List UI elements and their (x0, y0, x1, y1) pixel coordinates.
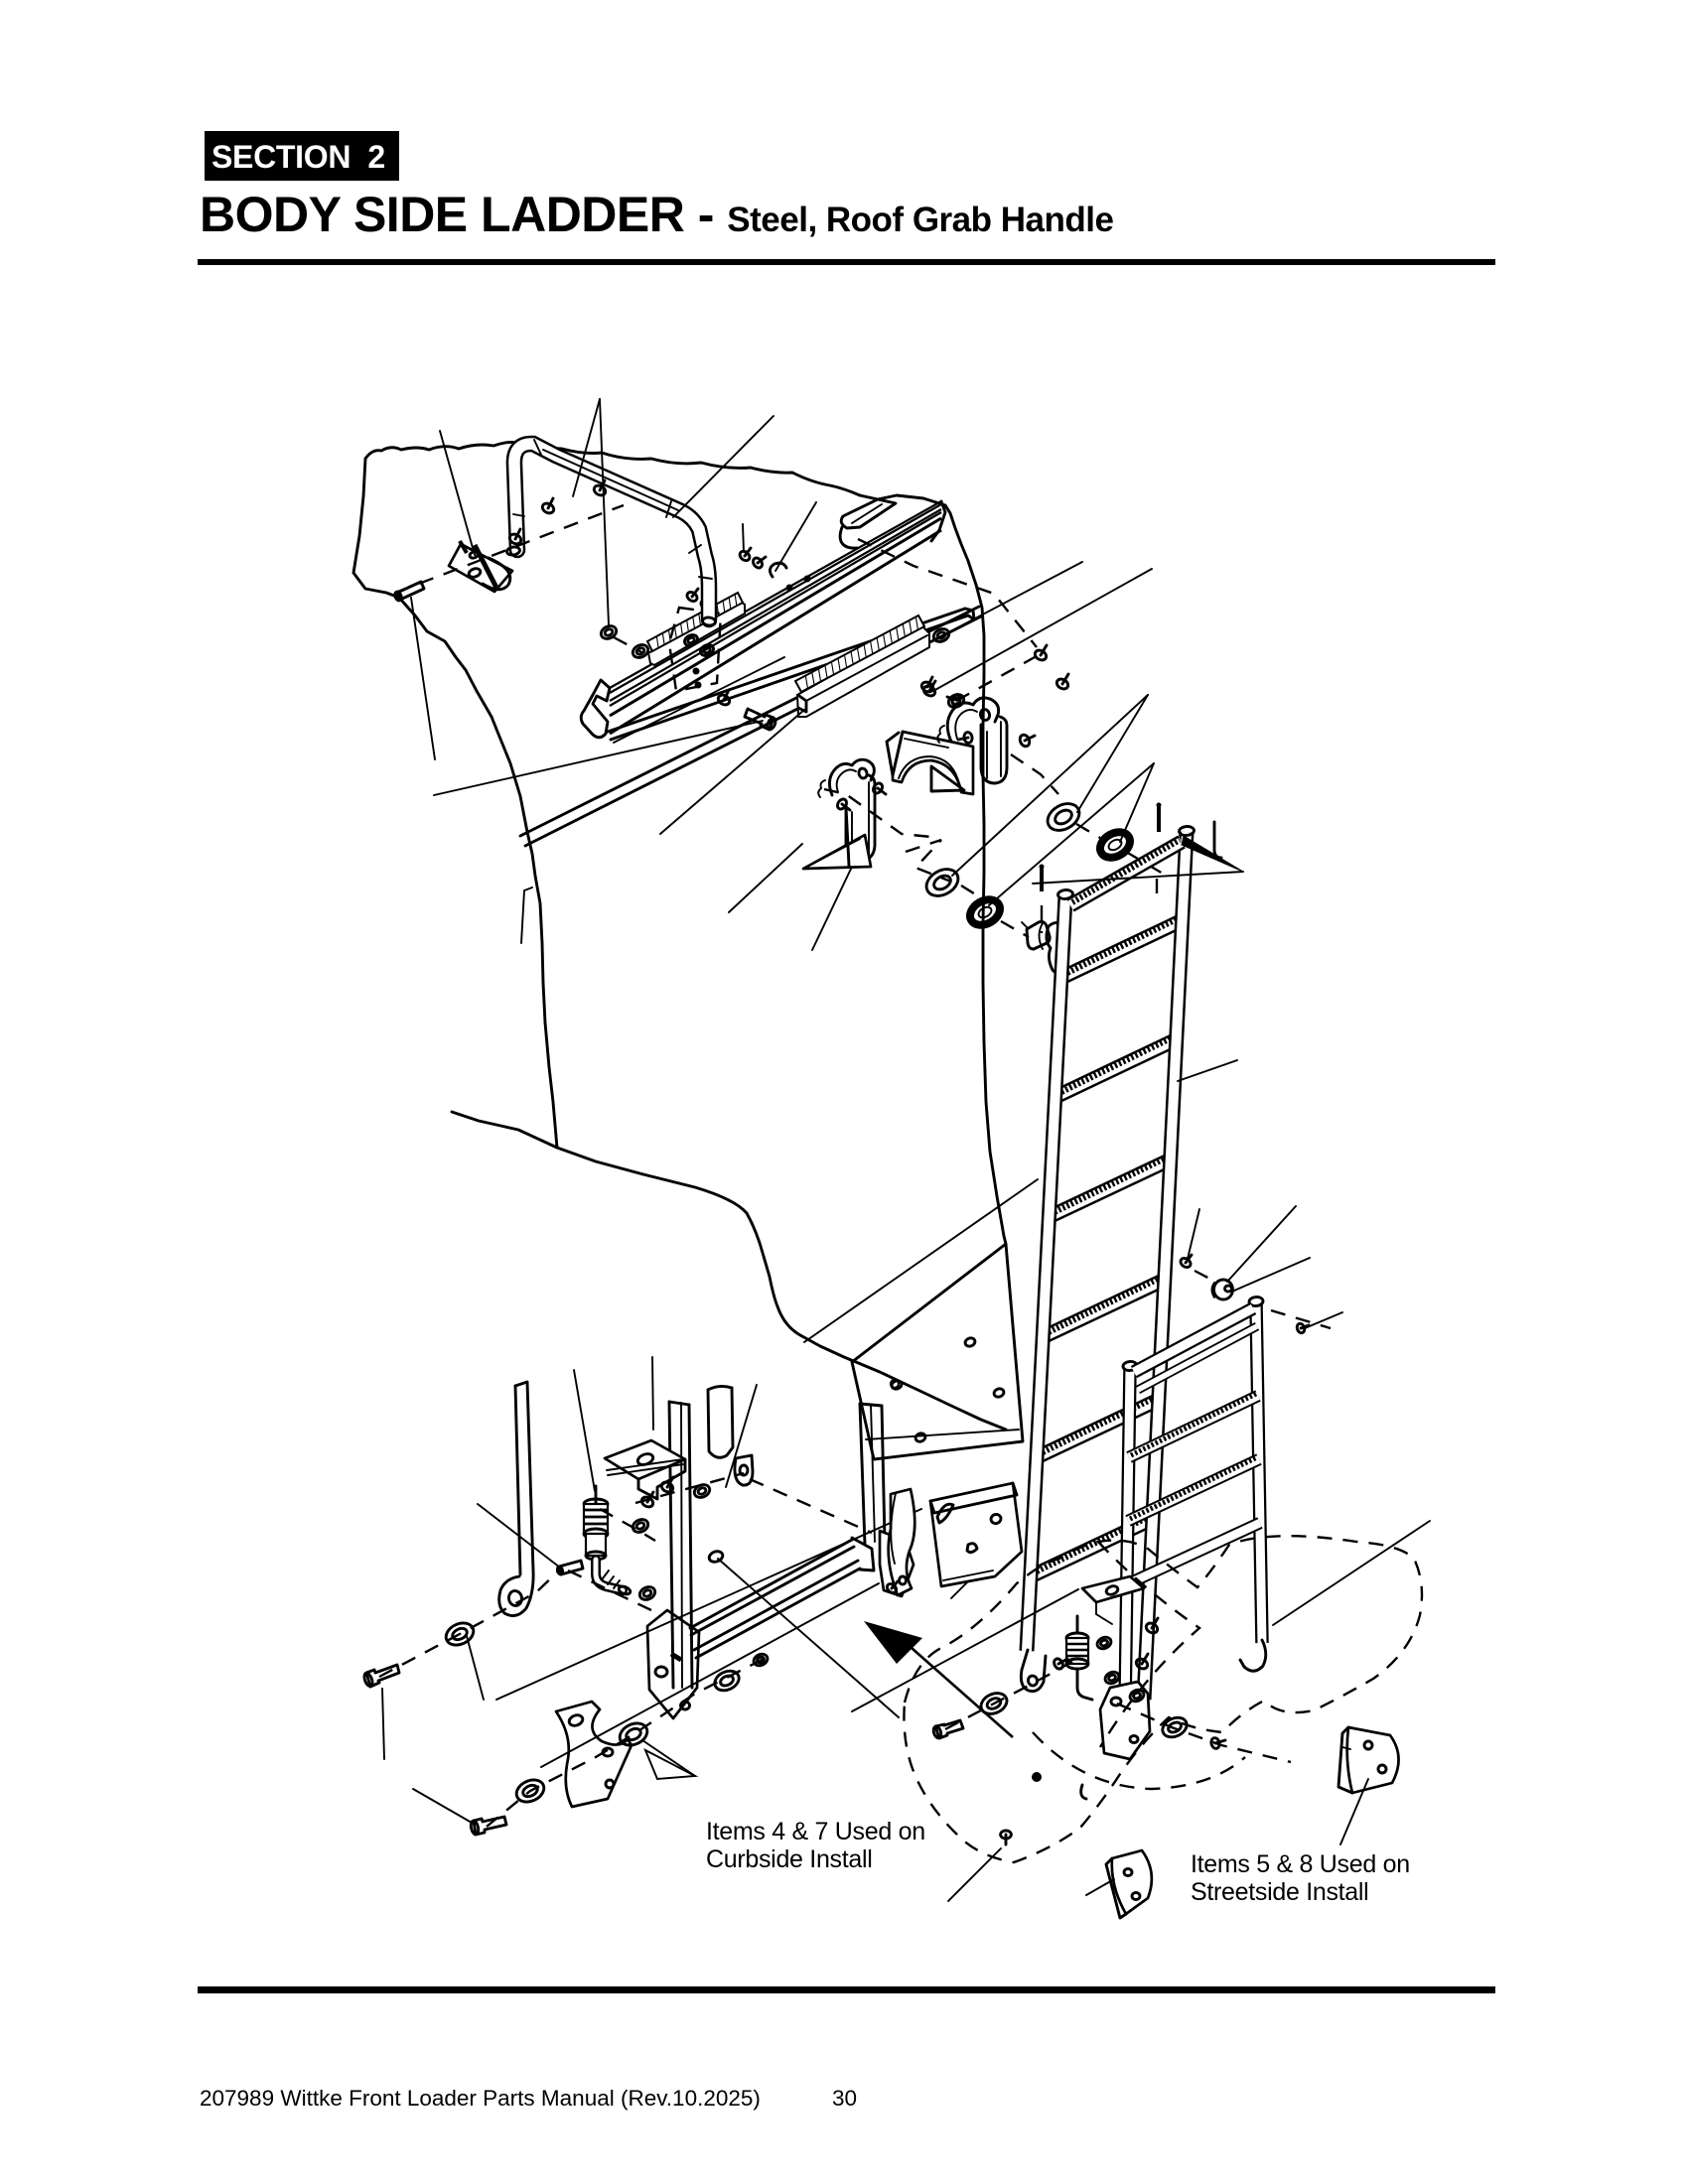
svg-text:Items 5 & 8 Used on: Items 5 & 8 Used on (1191, 1850, 1410, 1878)
svg-text:30: 30 (832, 2086, 857, 2111)
svg-text:Streetside Install: Streetside Install (1191, 1878, 1368, 1906)
svg-text:SECTION 2: SECTION 2 (211, 139, 385, 175)
svg-text:Items 4 & 7 Used on: Items 4 & 7 Used on (706, 1818, 925, 1845)
svg-text:207989 Wittke Front Loader Par: 207989 Wittke Front Loader Parts Manual … (200, 2086, 761, 2111)
svg-text:Curbside Install: Curbside Install (706, 1845, 873, 1873)
